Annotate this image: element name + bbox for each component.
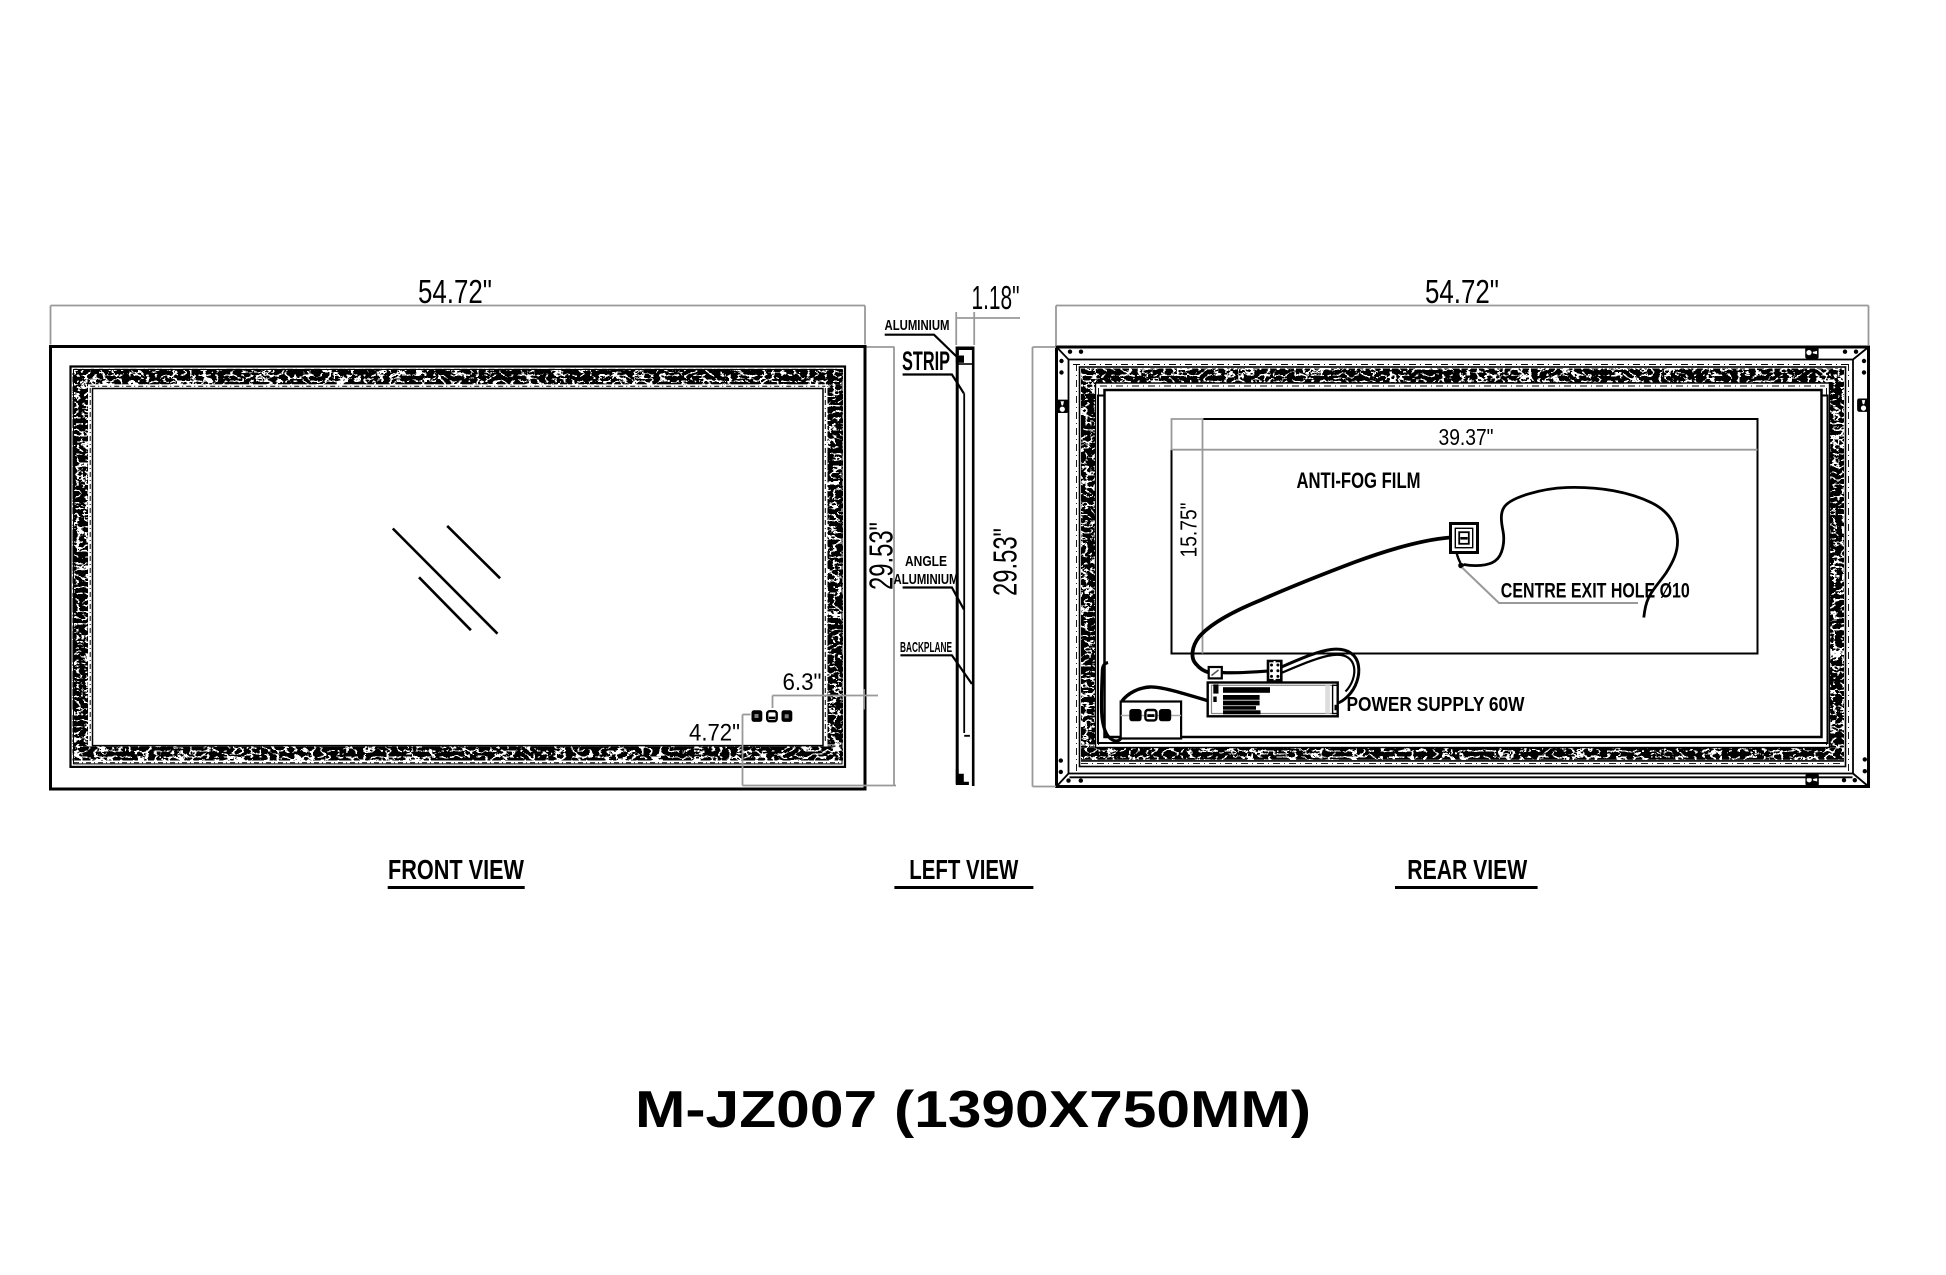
svg-text:54.72": 54.72": [418, 273, 492, 310]
svg-text:1.18": 1.18": [972, 279, 1020, 316]
svg-text:REAR VIEW: REAR VIEW: [1407, 854, 1527, 885]
svg-text:ALUMINIUM: ALUMINIUM: [894, 571, 959, 588]
svg-text:BACKPLANE: BACKPLANE: [900, 639, 952, 656]
svg-text:15.75": 15.75": [1176, 503, 1202, 558]
svg-text:STRIP: STRIP: [902, 346, 950, 376]
svg-text:ANTI-FOG FILM: ANTI-FOG FILM: [1297, 468, 1421, 493]
svg-text:ANGLE: ANGLE: [905, 553, 947, 570]
svg-text:ALUMINIUM: ALUMINIUM: [885, 317, 950, 334]
svg-text:6.3": 6.3": [783, 669, 822, 696]
svg-text:FRONT VIEW: FRONT VIEW: [388, 854, 524, 885]
svg-text:M-JZ007 (1390X750MM): M-JZ007 (1390X750MM): [635, 1081, 1311, 1139]
svg-text:4.72": 4.72": [689, 720, 740, 747]
svg-text:39.37": 39.37": [1439, 424, 1494, 450]
svg-text:LEFT VIEW: LEFT VIEW: [909, 854, 1018, 885]
svg-text:CENTRE EXIT HOLE Ø10: CENTRE EXIT HOLE Ø10: [1501, 580, 1690, 603]
svg-text:54.72": 54.72": [1425, 273, 1499, 310]
svg-text:29.53": 29.53": [987, 528, 1024, 596]
svg-text:POWER SUPPLY 60W: POWER SUPPLY 60W: [1347, 694, 1525, 716]
